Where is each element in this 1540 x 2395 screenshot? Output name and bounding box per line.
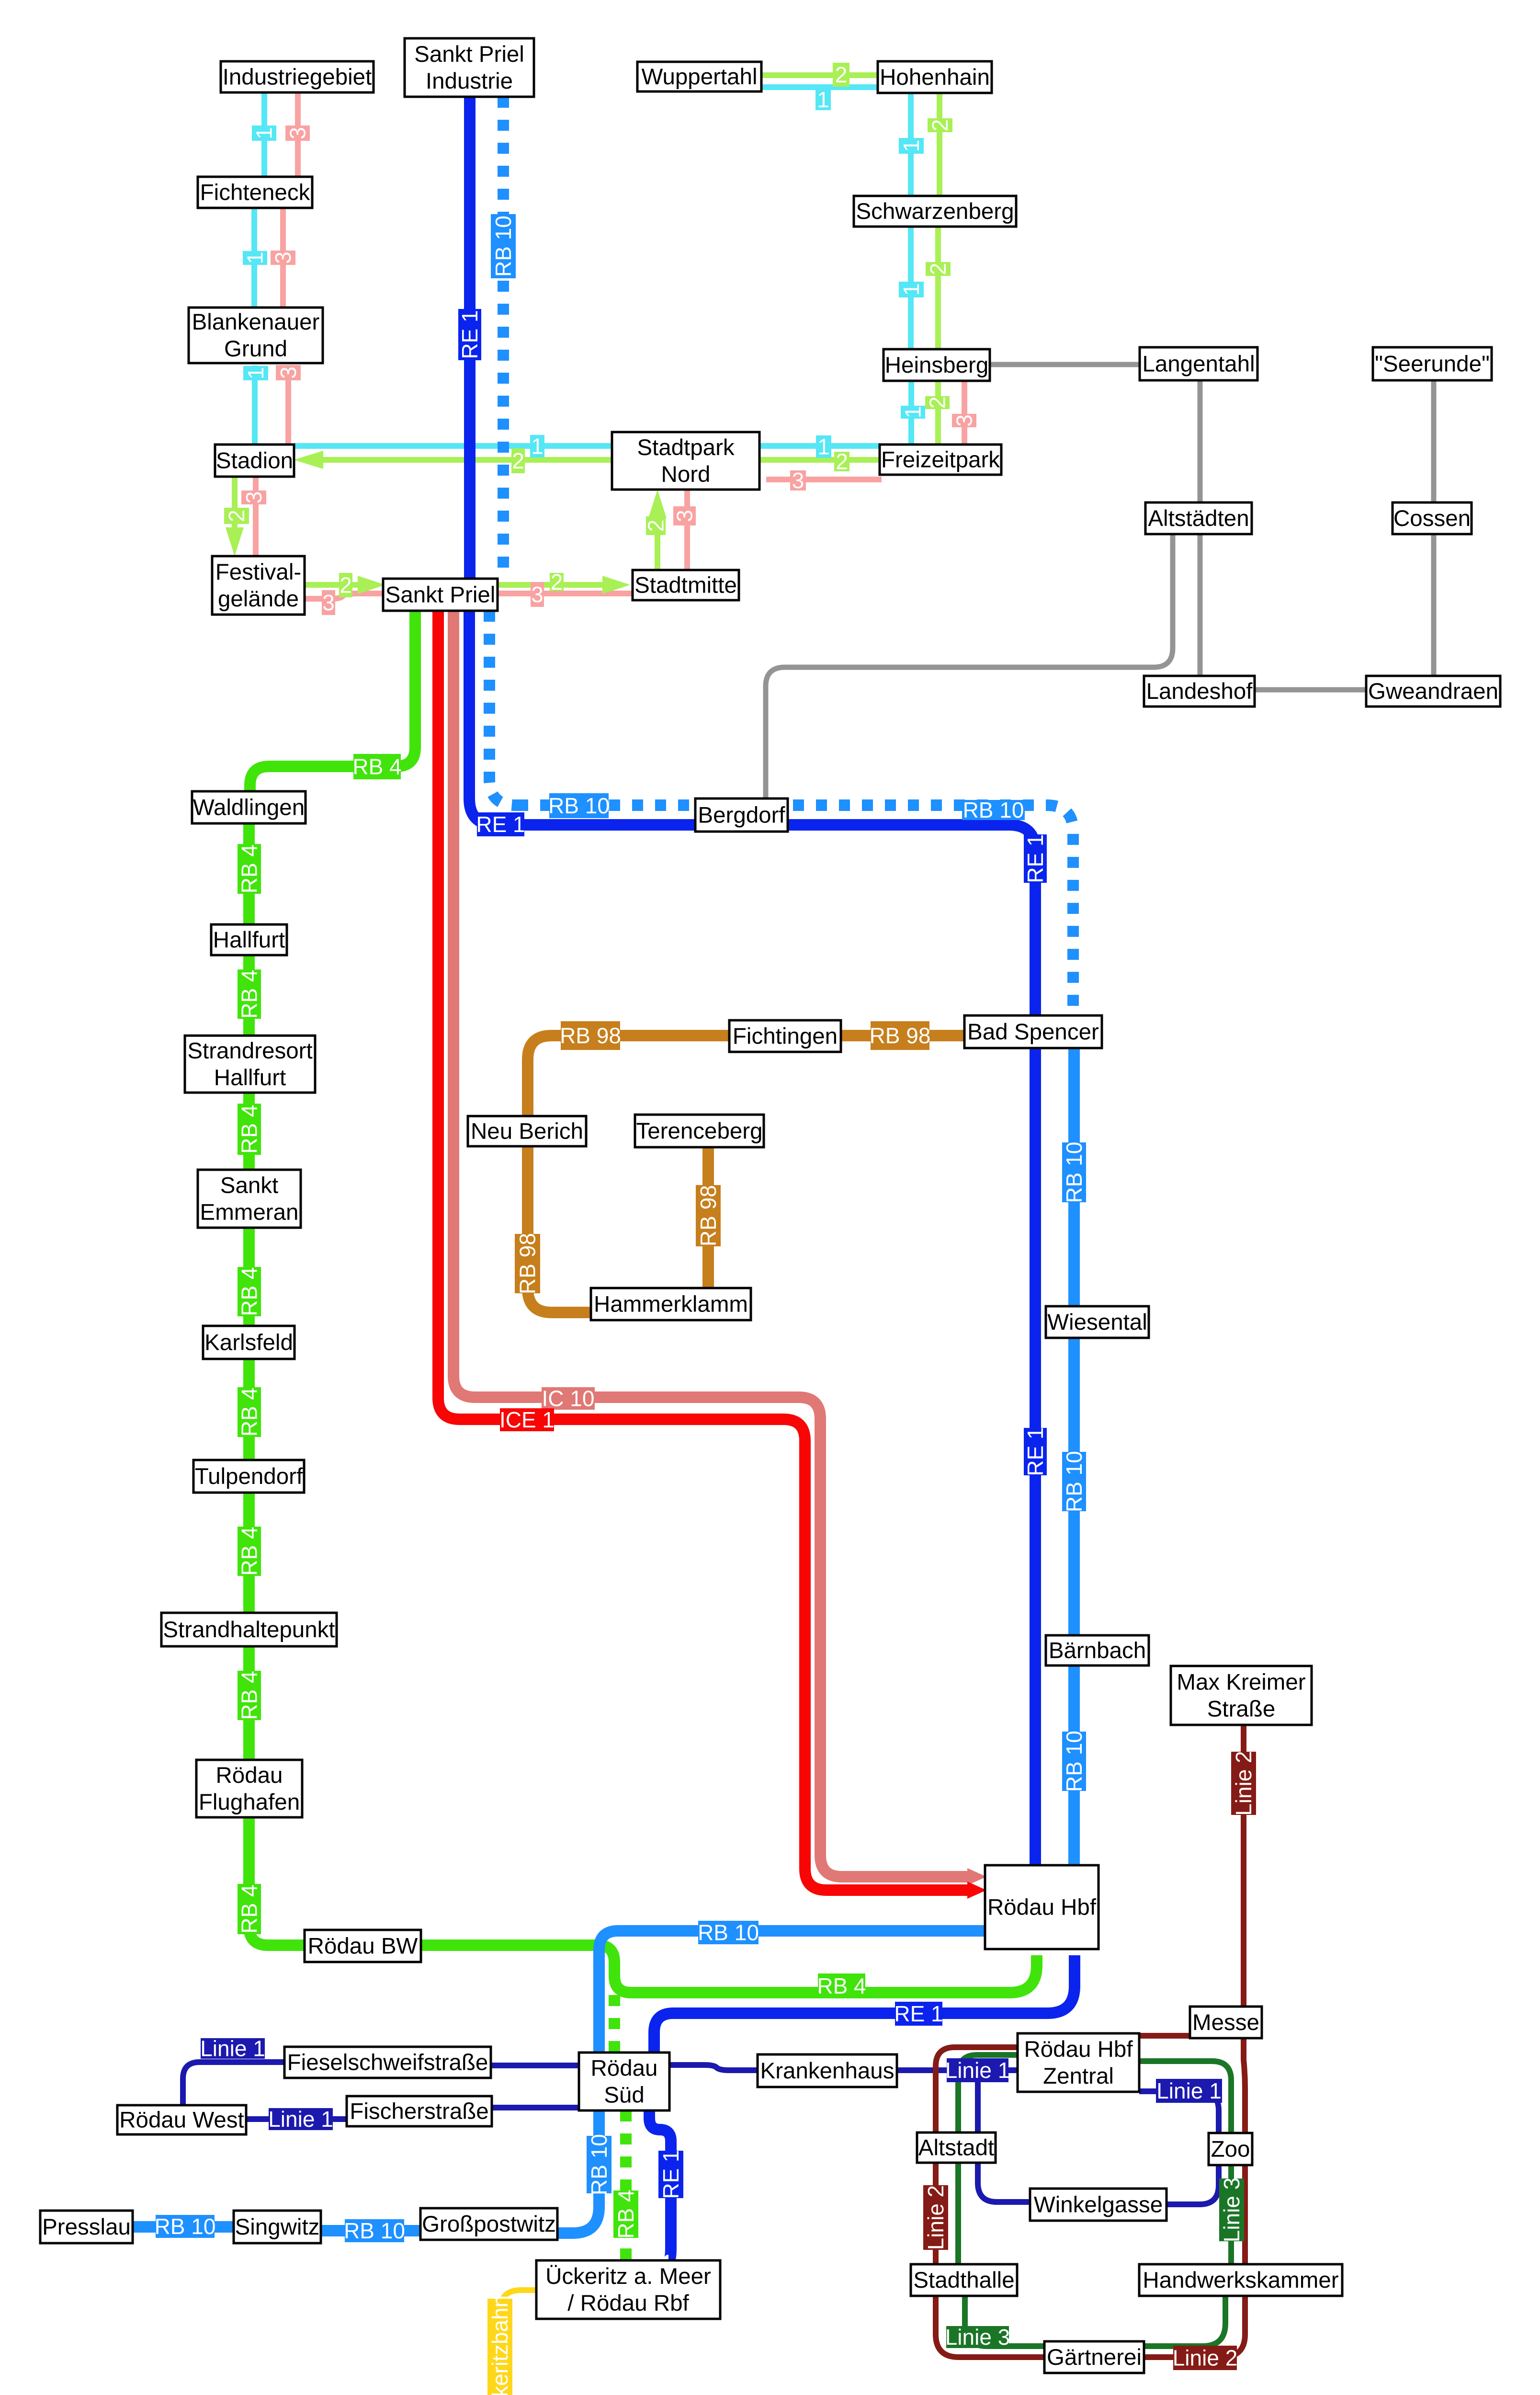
svg-text:Ückeritz a. Meer: Ückeritz a. Meer (545, 2264, 711, 2289)
svg-text:3: 3 (672, 510, 697, 522)
svg-text:RE 1: RE 1 (476, 812, 525, 837)
svg-text:Hallfurt: Hallfurt (214, 1065, 286, 1091)
svg-text:Wuppertahl: Wuppertahl (641, 64, 757, 90)
svg-text:Gweandraen: Gweandraen (1368, 679, 1498, 704)
svg-text:/ Rödau Rbf: / Rödau Rbf (567, 2291, 689, 2316)
svg-text:Singwitz: Singwitz (235, 2214, 320, 2240)
svg-text:Altstädten: Altstädten (1148, 506, 1249, 531)
svg-text:Bärnbach: Bärnbach (1049, 1638, 1146, 1664)
svg-text:RB 10: RB 10 (698, 1920, 759, 1945)
svg-text:RB 4: RB 4 (817, 1973, 866, 1998)
svg-text:Grund: Grund (224, 336, 287, 362)
svg-text:Süd: Süd (604, 2083, 645, 2108)
svg-text:Linie 1: Linie 1 (1156, 2078, 1222, 2103)
svg-text:Cossen: Cossen (1393, 506, 1471, 531)
svg-text:3: 3 (285, 127, 310, 139)
svg-text:RB 4: RB 4 (237, 1671, 262, 1720)
svg-text:2: 2 (551, 570, 563, 594)
svg-text:Nord: Nord (661, 462, 711, 487)
svg-text:Fieselschweifstraße: Fieselschweifstraße (287, 2050, 488, 2076)
svg-text:Emmeran: Emmeran (200, 1200, 299, 1225)
svg-text:Stadion: Stadion (216, 448, 293, 474)
svg-text:RB 4: RB 4 (237, 1105, 262, 1153)
svg-text:Gärtnerei: Gärtnerei (1047, 2345, 1142, 2370)
svg-text:Ückeritzbahn: Ückeritzbahn (487, 2295, 512, 2395)
svg-text:RB 98: RB 98 (696, 1185, 721, 1246)
svg-text:Rödau BW: Rödau BW (308, 1934, 418, 1959)
svg-text:RE 1: RE 1 (1023, 1427, 1048, 1476)
svg-text:3: 3 (322, 590, 335, 615)
svg-text:Flughafen: Flughafen (199, 1790, 300, 1815)
svg-text:Hohenhain: Hohenhain (880, 65, 990, 90)
svg-text:Industriegebiet: Industriegebiet (223, 65, 372, 90)
svg-text:Linie 3: Linie 3 (945, 2325, 1010, 2349)
svg-text:Linie 1: Linie 1 (268, 2107, 333, 2132)
svg-text:Sankt Priel: Sankt Priel (385, 582, 496, 608)
svg-text:Fischerstraße: Fischerstraße (350, 2099, 488, 2124)
svg-text:RB 98: RB 98 (870, 1023, 931, 1048)
svg-text:3: 3 (276, 366, 301, 379)
svg-text:Karlsfeld: Karlsfeld (204, 1330, 293, 1356)
svg-text:Presslau: Presslau (42, 2214, 131, 2240)
svg-text:RE 1: RE 1 (658, 2150, 683, 2199)
svg-text:RB 10: RB 10 (587, 2134, 611, 2195)
svg-text:RE 1: RE 1 (1023, 834, 1048, 883)
svg-text:1: 1 (817, 87, 829, 112)
svg-text:2: 2 (644, 520, 668, 532)
svg-text:Rödau Hbf: Rödau Hbf (1024, 2037, 1133, 2062)
svg-text:Wiesental: Wiesental (1047, 1310, 1147, 1335)
svg-text:Altstadt: Altstadt (918, 2135, 994, 2161)
svg-text:Bergdorf: Bergdorf (698, 803, 785, 828)
svg-text:3: 3 (271, 251, 295, 264)
svg-text:Sankt Priel: Sankt Priel (414, 42, 524, 67)
svg-text:Handwerkskammer: Handwerkskammer (1143, 2268, 1338, 2293)
svg-text:1: 1 (531, 434, 544, 459)
svg-text:1: 1 (817, 434, 830, 459)
svg-text:2: 2 (224, 510, 249, 522)
svg-text:RB 10: RB 10 (155, 2214, 216, 2239)
svg-text:2: 2 (928, 119, 952, 132)
svg-text:2: 2 (926, 263, 951, 275)
svg-text:Hammerklamm: Hammerklamm (594, 1292, 748, 1317)
svg-text:2: 2 (512, 448, 524, 473)
svg-text:RE 1: RE 1 (457, 310, 482, 359)
svg-text:3: 3 (241, 491, 266, 504)
svg-text:3: 3 (531, 582, 544, 607)
svg-text:"Seerunde": "Seerunde" (1375, 352, 1490, 377)
svg-text:RB 10: RB 10 (1062, 1731, 1087, 1792)
svg-text:RB 4: RB 4 (237, 1267, 262, 1316)
svg-text:Stadtmitte: Stadtmitte (634, 573, 737, 598)
svg-text:Fichtingen: Fichtingen (733, 1024, 838, 1049)
svg-text:2: 2 (836, 449, 848, 474)
svg-text:Zoo: Zoo (1211, 2137, 1250, 2162)
svg-text:Messe: Messe (1192, 2010, 1259, 2035)
svg-text:3: 3 (792, 468, 804, 493)
svg-text:Rödau: Rödau (591, 2056, 658, 2081)
svg-text:RB 4: RB 4 (237, 1388, 262, 1437)
svg-text:Rödau: Rödau (216, 1763, 283, 1788)
svg-text:Rödau West: Rödau West (119, 2108, 244, 2133)
svg-text:Linie 2: Linie 2 (1231, 1751, 1256, 1816)
svg-text:Linie 1: Linie 1 (200, 2036, 265, 2061)
svg-text:Linie 2: Linie 2 (923, 2185, 948, 2250)
svg-text:RB 10: RB 10 (1062, 1142, 1087, 1203)
svg-text:Großpostwitz: Großpostwitz (422, 2212, 556, 2237)
svg-text:Fichteneck: Fichteneck (200, 180, 310, 205)
svg-text:RE 1: RE 1 (894, 2001, 943, 2026)
svg-text:Zentral: Zentral (1043, 2064, 1114, 2089)
svg-text:Krankenhaus: Krankenhaus (760, 2058, 895, 2084)
svg-text:RB 4: RB 4 (352, 754, 401, 779)
svg-text:Strandhaltepunkt: Strandhaltepunkt (163, 1617, 335, 1642)
svg-text:Max Kreimer: Max Kreimer (1177, 1670, 1305, 1695)
svg-text:ICE 1: ICE 1 (499, 1407, 555, 1432)
svg-text:2: 2 (340, 573, 352, 598)
svg-text:RB 10: RB 10 (344, 2218, 405, 2243)
svg-text:Blankenauer: Blankenauer (192, 309, 320, 335)
svg-text:RB 4: RB 4 (237, 969, 262, 1018)
svg-text:RB 4: RB 4 (237, 1884, 262, 1933)
svg-text:RB 10: RB 10 (548, 793, 610, 818)
svg-text:Landeshof: Landeshof (1146, 679, 1253, 704)
svg-text:Winkelgasse: Winkelgasse (1034, 2192, 1163, 2218)
svg-text:RB 4: RB 4 (613, 2190, 638, 2238)
svg-text:3: 3 (952, 414, 977, 427)
svg-text:1: 1 (243, 367, 268, 379)
svg-text:Neu Berich: Neu Berich (471, 1119, 583, 1144)
svg-text:1: 1 (899, 140, 924, 152)
svg-text:Tulpendorf: Tulpendorf (195, 1464, 303, 1489)
svg-text:Waldlingen: Waldlingen (193, 795, 305, 821)
svg-text:Stadtpark: Stadtpark (637, 435, 735, 460)
svg-text:Freizeitpark: Freizeitpark (881, 447, 1000, 473)
svg-text:2: 2 (925, 397, 950, 409)
svg-text:Linie 2: Linie 2 (1173, 2346, 1238, 2371)
svg-text:Heinsberg: Heinsberg (885, 353, 989, 378)
svg-text:RB 10: RB 10 (1062, 1451, 1087, 1512)
svg-text:Strandresort: Strandresort (187, 1038, 312, 1064)
svg-text:Linie 1: Linie 1 (945, 2058, 1010, 2083)
svg-text:Langentahl: Langentahl (1142, 352, 1255, 377)
svg-text:1: 1 (899, 284, 924, 296)
svg-text:Stadthalle: Stadthalle (913, 2268, 1014, 2293)
svg-text:RB 4: RB 4 (237, 1527, 262, 1575)
svg-text:RB 10: RB 10 (963, 798, 1024, 822)
svg-text:Straße: Straße (1207, 1697, 1276, 1722)
svg-text:1: 1 (243, 252, 268, 264)
svg-text:Festival-: Festival- (215, 559, 301, 585)
svg-text:1: 1 (252, 127, 277, 139)
svg-text:Hallfurt: Hallfurt (213, 927, 285, 953)
svg-text:Terenceberg: Terenceberg (636, 1118, 762, 1144)
svg-text:Linie 3: Linie 3 (1219, 2178, 1244, 2243)
svg-text:Rödau Hbf: Rödau Hbf (987, 1895, 1097, 1920)
svg-text:gelände: gelände (218, 586, 299, 612)
svg-text:RB 98: RB 98 (515, 1233, 540, 1294)
svg-text:Bad Spencer: Bad Spencer (967, 1019, 1099, 1045)
svg-text:Industrie: Industrie (426, 68, 513, 94)
svg-text:Sankt: Sankt (220, 1173, 278, 1198)
svg-text:2: 2 (835, 62, 848, 87)
svg-text:RB 10: RB 10 (491, 216, 516, 277)
svg-text:1: 1 (901, 406, 926, 419)
svg-text:Schwarzenberg: Schwarzenberg (856, 199, 1014, 224)
svg-text:RB 98: RB 98 (560, 1023, 621, 1048)
svg-text:RB 4: RB 4 (237, 844, 262, 893)
